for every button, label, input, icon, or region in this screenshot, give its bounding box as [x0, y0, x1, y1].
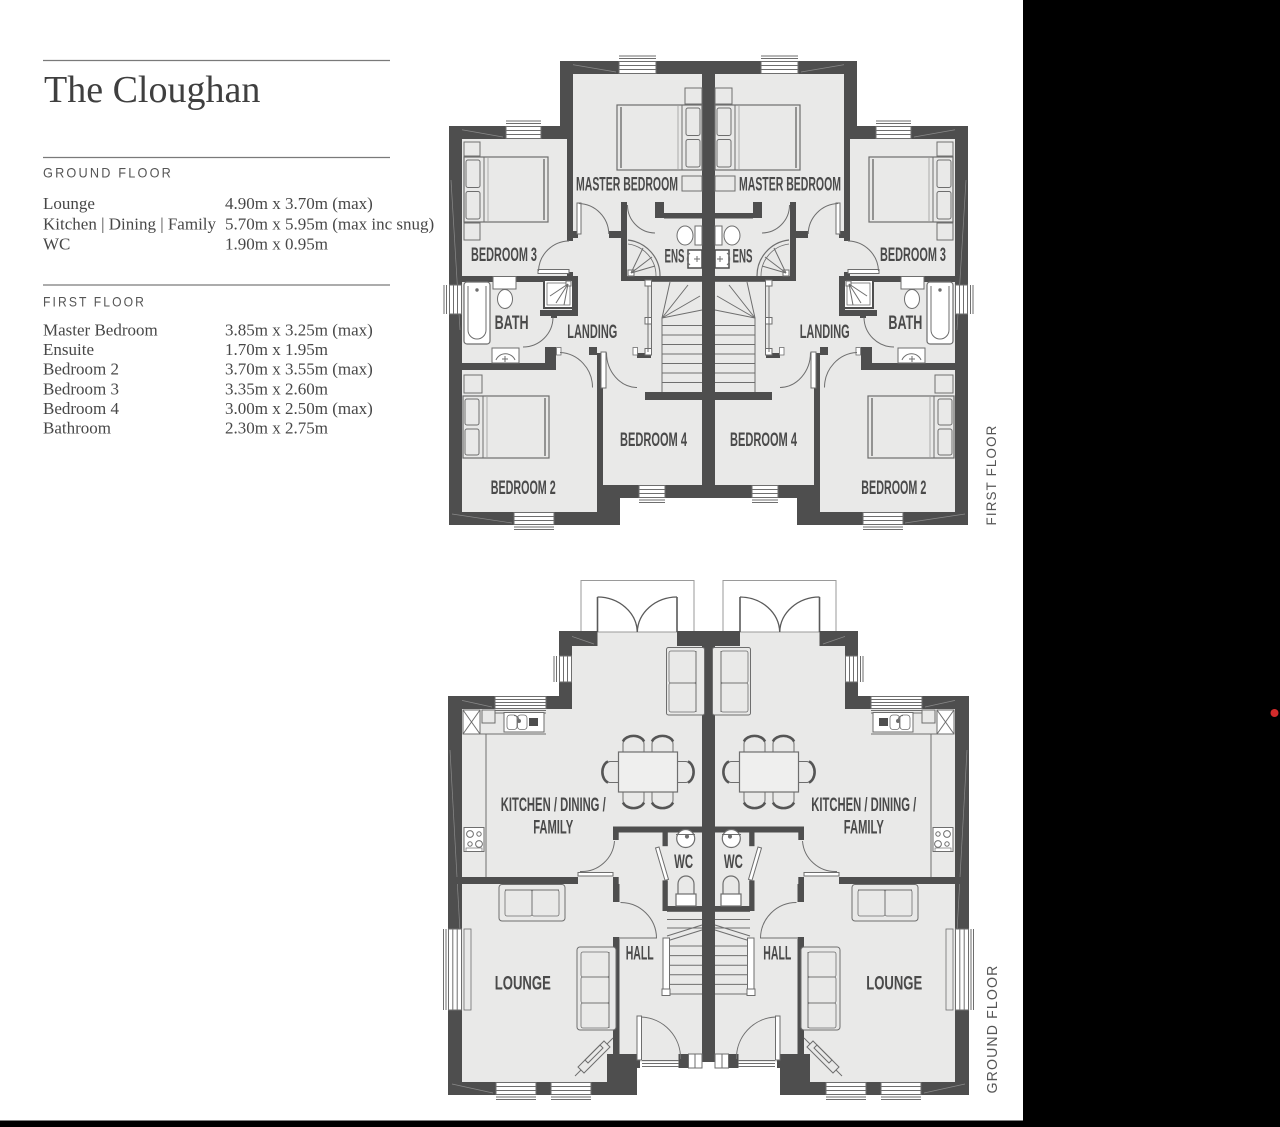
svg-text:Bedroom 2: Bedroom 2	[43, 360, 119, 379]
svg-text:WC: WC	[43, 235, 70, 254]
svg-text:LANDING: LANDING	[567, 322, 617, 343]
svg-text:Ensuite: Ensuite	[43, 340, 94, 359]
svg-text:FAMILY: FAMILY	[844, 818, 884, 839]
svg-text:WC: WC	[724, 852, 743, 873]
svg-text:HALL: HALL	[626, 943, 654, 964]
svg-text:1.90m x 0.95m: 1.90m x 0.95m	[225, 235, 328, 254]
svg-text:LANDING: LANDING	[800, 322, 850, 343]
svg-text:3.35m x 2.60m: 3.35m x 2.60m	[225, 379, 328, 398]
svg-text:Master Bedroom: Master Bedroom	[43, 321, 158, 340]
svg-text:GROUND FLOOR: GROUND FLOOR	[43, 165, 173, 181]
svg-text:FAMILY: FAMILY	[533, 818, 573, 839]
svg-text:Lounge: Lounge	[43, 194, 95, 213]
svg-text:BEDROOM 3: BEDROOM 3	[880, 245, 946, 266]
svg-text:4.90m x 3.70m (max): 4.90m x 3.70m (max)	[225, 194, 373, 213]
svg-text:3.85m x 3.25m (max): 3.85m x 3.25m (max)	[225, 321, 373, 340]
svg-text:WC: WC	[674, 852, 693, 873]
svg-text:5.70m x 5.95m (max inc snug): 5.70m x 5.95m (max inc snug)	[225, 214, 434, 233]
svg-text:LOUNGE: LOUNGE	[866, 973, 922, 994]
svg-text:Bedroom 3: Bedroom 3	[43, 379, 119, 398]
svg-text:2.30m x 2.75m: 2.30m x 2.75m	[225, 419, 328, 438]
svg-text:KITCHEN / DINING /: KITCHEN / DINING /	[811, 795, 916, 816]
svg-text:FIRST FLOOR: FIRST FLOOR	[983, 425, 999, 526]
svg-text:FIRST FLOOR: FIRST FLOOR	[43, 294, 146, 310]
svg-text:ENS: ENS	[733, 247, 753, 268]
svg-text:HALL: HALL	[763, 943, 791, 964]
svg-text:BEDROOM 4: BEDROOM 4	[620, 430, 687, 451]
svg-text:KITCHEN / DINING /: KITCHEN / DINING /	[501, 795, 606, 816]
svg-text:BATH: BATH	[495, 313, 529, 334]
svg-text:Bedroom 4: Bedroom 4	[43, 399, 120, 418]
svg-text:Kitchen | Dining | Family: Kitchen | Dining | Family	[43, 214, 217, 233]
svg-text:BATH: BATH	[888, 313, 922, 334]
svg-text:BEDROOM 2: BEDROOM 2	[491, 478, 556, 499]
svg-text:The Cloughan: The Cloughan	[44, 69, 260, 111]
svg-text:3.70m x 3.55m (max): 3.70m x 3.55m (max)	[225, 360, 373, 379]
svg-text:BEDROOM 4: BEDROOM 4	[730, 430, 797, 451]
svg-text:BEDROOM 3: BEDROOM 3	[471, 245, 537, 266]
svg-text:LOUNGE: LOUNGE	[495, 973, 551, 994]
svg-text:Bathroom: Bathroom	[43, 419, 111, 438]
svg-text:MASTER BEDROOM: MASTER BEDROOM	[739, 175, 841, 196]
svg-text:GROUND FLOOR: GROUND FLOOR	[984, 965, 1001, 1094]
svg-text:3.00m x 2.50m (max): 3.00m x 2.50m (max)	[225, 399, 373, 418]
svg-text:BEDROOM 2: BEDROOM 2	[861, 478, 926, 499]
svg-text:ENS: ENS	[665, 247, 685, 268]
svg-text:1.70m x 1.95m: 1.70m x 1.95m	[225, 340, 328, 359]
svg-text:MASTER BEDROOM: MASTER BEDROOM	[576, 175, 678, 196]
